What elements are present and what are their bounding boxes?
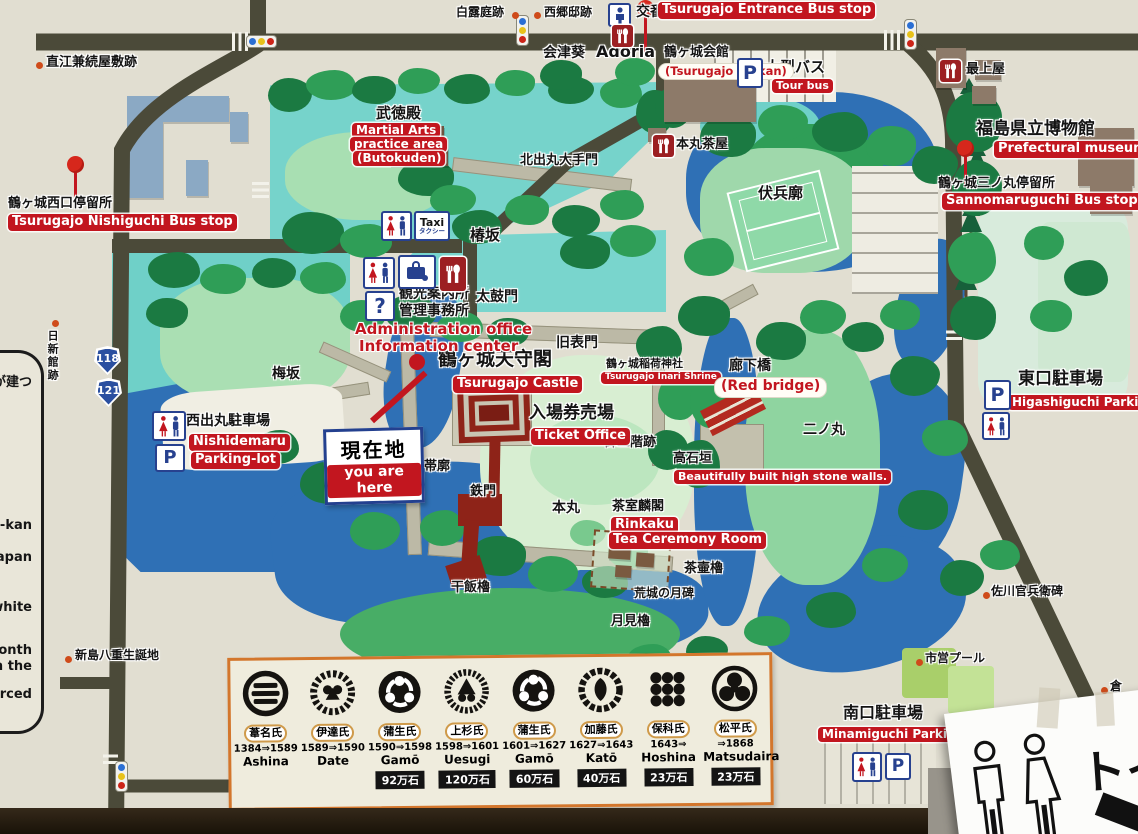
label-kitademaru-gate: 北出丸大手門 (520, 154, 598, 168)
restaurant-icon (612, 25, 633, 47)
tree-cluster (148, 252, 200, 288)
label-ninomaru: 二ノ丸 (803, 423, 845, 438)
legend-clan-hoshina: 保科氏 1643⇒ Hoshina 23万石 (635, 665, 701, 804)
tree-cluster (744, 616, 790, 646)
label-saigo-residence: 西郷邸跡 (544, 6, 592, 19)
building-block (972, 86, 996, 104)
legend-clan-matsudaira: 松平氏 ⇒1868 Matsudaira 23万石 (702, 664, 768, 803)
you-are-here-en: you are here (327, 463, 422, 498)
tree-cluster (306, 70, 356, 100)
toilet-icon (152, 411, 186, 441)
coin-locker-icon (398, 255, 436, 289)
crosswalk (884, 30, 900, 50)
tree-cluster (842, 322, 884, 352)
tree-cluster (352, 76, 396, 104)
label-butokuden: 武徳殿 (376, 105, 421, 122)
crest-mitsudomoe-icon (375, 668, 424, 717)
toilet-icon (381, 211, 412, 241)
label-kojo-monument: 荒城の月碑 (634, 587, 694, 600)
label-info-office-2: 管理事務所 (399, 304, 469, 319)
label-kaikan-en: (Tsurugajo Kaikan) (658, 63, 794, 80)
poi-dot (65, 656, 72, 663)
crest-hollyhock-icon (711, 664, 760, 713)
label-higashi-parking-en: Higashiguchi Parking-lot (1008, 395, 1138, 410)
label-rinkaku-en2: Tea Ceremony Room (609, 532, 766, 549)
label-rokabashi: 廊下橋 (729, 359, 771, 374)
tree-cluster (950, 296, 996, 340)
tree-cluster (444, 74, 490, 104)
crest-uesugi-icon (442, 667, 491, 716)
tree-cluster (505, 195, 549, 225)
parking-icon: P (984, 380, 1011, 410)
label-nishidemaru-en1: Nishidemaru (189, 434, 290, 451)
legend-clan-kato: 加藤氏 1627⇒1643 Katō 40万石 (568, 666, 634, 805)
toilet-icon (982, 412, 1010, 440)
police-icon (608, 3, 631, 27)
tree-cluster (898, 490, 948, 530)
poi-dot (983, 592, 990, 599)
traffic-light (116, 762, 127, 791)
label-aizu-aoi: 会津葵 (543, 46, 585, 61)
label-mogamiya: 最上屋 (966, 63, 1005, 77)
tree-cluster (1064, 260, 1108, 296)
label-ticket-en: Ticket Office (531, 428, 630, 445)
tree-cluster (756, 322, 806, 360)
taxi-icon: Taxi タクシー (414, 211, 450, 241)
crosswalk (252, 182, 269, 198)
label-sagawa-monument: 佐川官兵衛碑 (991, 585, 1063, 598)
restaurant-icon (440, 257, 466, 291)
label-sannomaru-bus-en: Sannomaruguchi Bus stop (942, 193, 1138, 210)
label-nishiguchi-bus: 鶴ヶ城西口停留所 (8, 197, 112, 211)
label-higashi-parking: 東口駐車場 (1018, 370, 1103, 389)
label-nishidemaru-en2: Parking-lot (191, 452, 280, 469)
label-fukubei: 伏兵廓 (758, 185, 803, 202)
restaurant-icon (653, 135, 674, 157)
label-pool: 市営プール (925, 652, 985, 665)
parking-icon: P (737, 58, 763, 88)
panel-fragment: n the (0, 659, 32, 674)
label-rokabashi-en: (Red bridge) (714, 377, 827, 398)
toilet-sign-text: トイ (1078, 731, 1138, 803)
traffic-light (517, 16, 528, 45)
you-are-here-jp: 現在地 (326, 439, 420, 461)
tree-cluster (495, 70, 535, 96)
label-museum-en: Prefectural museum (994, 141, 1138, 158)
you-are-here-box: 現在地 you are here (323, 427, 425, 506)
tape-strip (1037, 687, 1061, 728)
label-admin-office-en2: Information center (359, 338, 518, 355)
label-hoshii-yagura: 干飯櫓 (451, 581, 490, 595)
label-obikuruwa: 帯廓 (424, 460, 450, 474)
map-sign: 直江兼続屋敷跡 白露庭跡 西郷邸跡 交番 会津葵 Adoria 鶴ヶ城会館 大型… (0, 0, 1138, 834)
label-sannomaru-bus: 鶴ヶ城三ノ丸停留所 (938, 177, 1055, 191)
legend-clan-ashina: 葦名氏 1384⇒1589 Ashina (232, 669, 298, 808)
panel-fragment: n Japan (0, 550, 32, 565)
clan-legend: 葦名氏 1384⇒1589 Ashina 伊達氏 1589⇒1590 Date … (227, 652, 774, 811)
information-icon: ? (365, 291, 395, 321)
adjacent-info-panel: が建つ -kan n Japan y white a month n the r… (0, 350, 44, 734)
legend-clan-date: 伊達氏 1589⇒1590 Date (300, 668, 366, 807)
label-inari-en: Tsurugajo Inari Shrine (601, 372, 721, 384)
legend-clan-gamo1: 蒲生氏 1590⇒1598 Gamō 92万石 (367, 668, 433, 807)
panel-fragment: a month (0, 643, 32, 658)
toilet-icon (363, 257, 395, 289)
tree-cluster (806, 592, 856, 628)
label-honmaru-chaya: 本丸茶屋 (676, 138, 728, 152)
tree-cluster (300, 262, 346, 294)
label-umesaka: 梅坂 (272, 367, 300, 382)
label-inari-shrine: 鶴ヶ城稲荷神社 (606, 358, 683, 370)
panel-fragment: rced (0, 687, 32, 702)
crest-wisteria-icon (576, 666, 625, 715)
traffic-light (247, 36, 276, 47)
poi-dot (534, 12, 541, 19)
label-hakuro-garden: 白露庭跡 (456, 6, 504, 19)
rinkaku-building (636, 552, 655, 567)
label-tsubaki-slope: 椿坂 (470, 227, 500, 244)
tree-cluster (980, 540, 1020, 570)
tree-cluster (540, 60, 582, 90)
label-nishiguchi-bus-en: Tsurugajo Nishiguchi Bus stop (8, 214, 237, 231)
panel-fragment: y white (0, 600, 32, 615)
panel-fragment: -kan (0, 518, 32, 533)
label-niijima-birthplace: 新島八重生誕地 (75, 649, 159, 662)
label-tsukimi-yagura: 月見櫓 (611, 615, 650, 629)
label-ticket-office: 入場券売場 (529, 404, 614, 423)
label-takaishigaki-en: Beautifully built high stone walls. (674, 470, 891, 484)
tree-cluster (922, 420, 968, 456)
panel-fragment: が建つ (0, 371, 32, 390)
parking-icon: P (155, 444, 185, 472)
poi-dot (52, 320, 59, 327)
toilet-figures-icon (957, 727, 1081, 834)
traffic-light (905, 20, 916, 49)
label-entrance-bus-en: Tsurugajo Entrance Bus stop (658, 2, 875, 19)
label-butokuden-en3: (Butokuden) (353, 151, 445, 166)
crest-ashina-icon (241, 669, 290, 718)
tree-cluster (560, 235, 610, 269)
tree-cluster (948, 232, 996, 284)
poi-dot (916, 659, 923, 666)
label-minamiguchi-parking: 南口駐車場 (843, 704, 923, 722)
label-taiko-gate: 太鼓門 (476, 290, 518, 305)
label-tetsumon: 鉄門 (470, 485, 496, 499)
legend-clan-gamo2: 蒲生氏 1601⇒1627 Gamō 60万石 (501, 666, 567, 805)
rinkaku-building (615, 565, 632, 578)
tree-cluster (200, 264, 246, 294)
crest-mitsudomoe-icon (509, 666, 558, 715)
label-tourbus-en: Tour bus (772, 79, 833, 93)
label-naoe-residence: 直江兼続屋敷跡 (46, 56, 137, 70)
poi-dot (512, 12, 519, 19)
tree-cluster (866, 126, 916, 166)
tree-cluster (1030, 300, 1072, 332)
label-museum: 福島県立博物館 (976, 120, 1095, 139)
label-takaishigaki: 高石垣 (673, 452, 712, 466)
tree-cluster (678, 296, 730, 336)
label-kaikan: 鶴ヶ城会館 (664, 46, 729, 60)
toilet-icon (852, 752, 882, 782)
label-kyuomote-gate: 旧表門 (556, 336, 598, 351)
bus-stop-pin (957, 140, 974, 157)
tape-strip (1095, 692, 1115, 727)
label-rinkaku: 茶室麟閣 (612, 500, 664, 514)
you-are-here-needle-head (409, 354, 425, 370)
poi-dot (36, 62, 43, 69)
parking-icon: P (885, 753, 911, 780)
legend-clan-uesugi: 上杉氏 1598⇒1601 Uesugi 120万石 (434, 667, 500, 806)
crest-date-icon (308, 669, 357, 718)
tree-cluster (684, 238, 734, 276)
tree-cluster (146, 298, 188, 328)
label-honmaru: 本丸 (552, 501, 580, 516)
bus-stop-pin (67, 156, 84, 173)
crest-nine-circles-icon (644, 665, 693, 714)
label-admin-office-en1: Administration office (355, 321, 532, 338)
label-castle-en: Tsurugajo Castle (453, 376, 582, 393)
label-nishidemaru-parking: 西出丸駐車場 (186, 414, 270, 429)
tree-cluster (600, 190, 644, 220)
label-chatsubo-yagura: 茶壷櫓 (684, 562, 723, 576)
tree-cluster (812, 112, 868, 152)
label-nisshinkan: 日新館跡 (46, 330, 58, 382)
tree-cluster (880, 300, 920, 330)
restaurant-icon (940, 60, 961, 82)
